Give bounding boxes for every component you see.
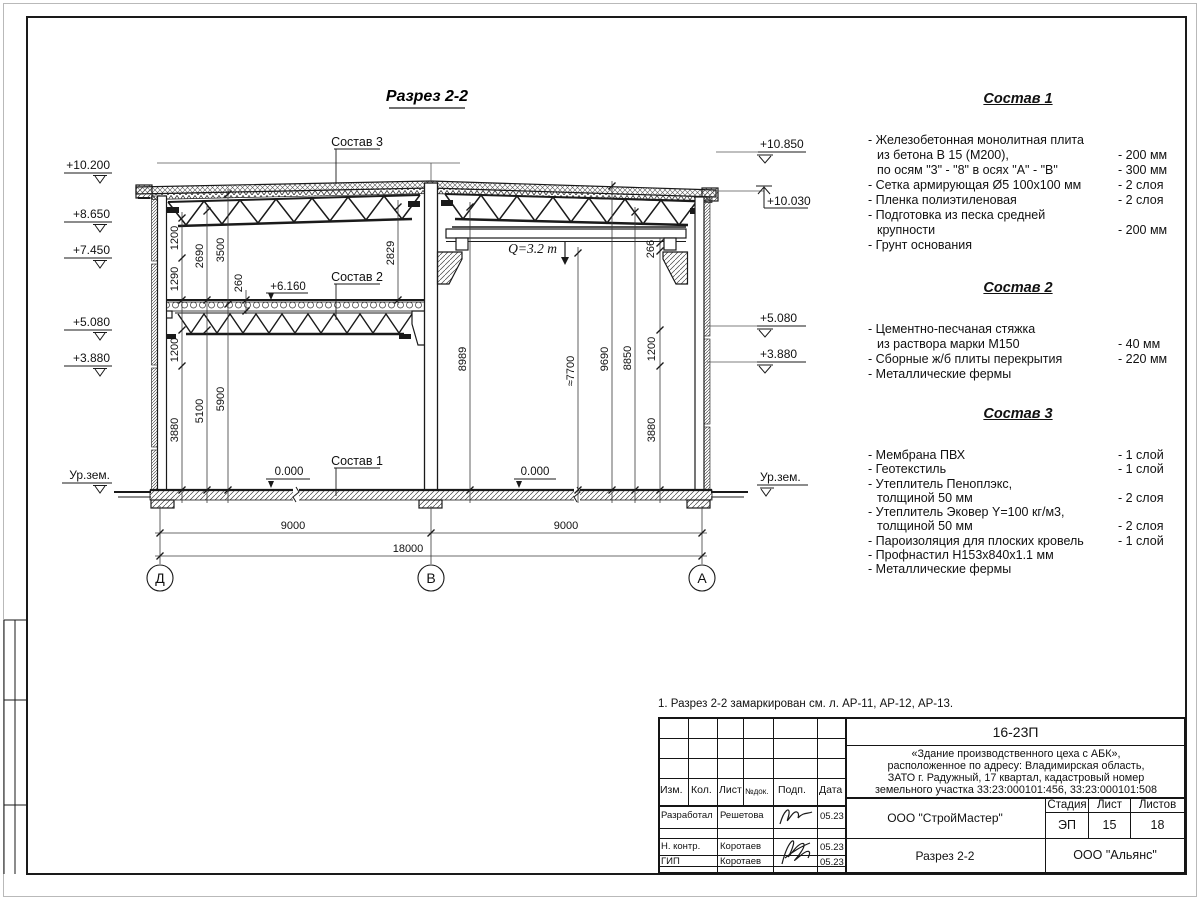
dim-1200-low: 1200 — [169, 338, 181, 362]
stage-value: ЭП — [1046, 818, 1088, 832]
dim-18000: 18000 — [393, 543, 424, 555]
svg-text:+3.880: +3.880 — [73, 351, 110, 365]
elev-7450: +7.450 — [64, 243, 112, 268]
axis-label-a: А — [697, 570, 707, 586]
svg-text:+8.650: +8.650 — [73, 207, 110, 221]
col-list: Лист — [719, 784, 742, 796]
dim-5900: 5900 — [215, 387, 227, 411]
corbel-right — [663, 252, 688, 284]
col-data: Дата — [819, 784, 842, 796]
composition-1: Состав 1 - Железобетонная монолитная пли… — [868, 92, 1168, 253]
elev-3880-left: +3.880 — [64, 351, 112, 376]
col-izm: Изм. — [660, 784, 683, 796]
svg-text:0.000: 0.000 — [521, 466, 550, 478]
section-name-cell: Разрез 2-2 — [846, 849, 1044, 863]
row3-date: 05.23 — [820, 857, 844, 868]
dim-9000-right: 9000 — [554, 520, 578, 532]
svg-text:+6.160: +6.160 — [270, 281, 306, 293]
project-line1: «Здание производственного цеха с АБК», — [848, 748, 1184, 760]
dim-2829: 2829 — [385, 241, 397, 265]
list-item: - Пленка полиэтиленовая- 2 слоя — [868, 193, 1168, 208]
level-6160: +6.160 — [266, 281, 308, 300]
elevation-marks-right: +10.850 +10.030 +5.080 +3.880 — [756, 137, 811, 496]
svg-text:Состав 3: Состав 3 — [331, 135, 383, 149]
intermediate-floor — [158, 300, 425, 345]
list-item: - Утеплитель Эковер Y=100 кг/м3, — [868, 505, 1168, 519]
col-podp: Подп. — [778, 784, 806, 796]
footing-left — [151, 500, 174, 508]
wall-axis-d — [152, 196, 167, 490]
dim-1290: 1290 — [169, 267, 181, 291]
elev-10030: +10.030 — [756, 186, 811, 208]
list-item: - Железобетонная монолитная плита — [868, 133, 1168, 148]
list-item: - Геотекстиль- 1 слой — [868, 462, 1168, 476]
dim-9690: 9690 — [599, 347, 611, 371]
elev-5080-right: +5.080 — [757, 311, 806, 337]
floor-bracket — [412, 311, 425, 345]
list-item: толщиной 50 мм- 2 слоя — [868, 491, 1168, 505]
doc-code: 16-23П — [846, 724, 1185, 740]
footing-right — [687, 500, 710, 508]
level-0-right: 0.000 — [514, 466, 556, 488]
drawing-sheet: Разрез 2-2 — [0, 0, 1200, 900]
composition-3: Состав 3 - Мембрана ПВХ- 1 слой - Геотек… — [868, 407, 1168, 577]
dim-9000-left: 9000 — [281, 520, 305, 532]
row1-date: 05.23 — [820, 811, 844, 822]
client-org: ООО "Альянс" — [1046, 848, 1184, 862]
project-line4: земельного участка 33:23:000101:456, 33:… — [848, 784, 1184, 796]
svg-text:Ур.зем.: Ур.зем. — [69, 468, 110, 482]
dim-5100: 5100 — [194, 399, 206, 423]
elev-10850: +10.850 — [757, 137, 806, 163]
dim-2690: 2690 — [194, 244, 206, 268]
composition-1-title: Состав 1 — [868, 92, 1168, 107]
stage-label: Стадия — [1046, 799, 1088, 811]
elev-10200: +10.200 — [64, 158, 112, 183]
footing-middle — [419, 500, 442, 508]
ground-floor — [114, 487, 748, 508]
composition-3-title: Состав 3 — [868, 407, 1168, 422]
elev-3880-right: +3.880 — [757, 347, 806, 373]
svg-text:+10.030: +10.030 — [767, 194, 811, 208]
list-item: - Мембрана ПВХ- 1 слой — [868, 448, 1168, 462]
elevation-marks-left: +10.200 +8.650 +7.450 +5.080 +3.880 — [62, 158, 112, 493]
roof-truss-left — [168, 195, 420, 226]
sheets-label: Листов — [1131, 799, 1184, 811]
list-item: - Металлические фермы — [868, 562, 1168, 576]
axis-label-v: В — [426, 570, 435, 586]
designer-org: ООО "СтройМастер" — [846, 811, 1044, 825]
composition-2-title: Состав 2 — [868, 281, 1168, 296]
row1-role: Разработал — [661, 810, 713, 821]
dim-3880-right: 3880 — [646, 418, 658, 442]
dim-8850: 8850 — [622, 346, 634, 370]
list-item: - Сборные ж/б плиты перекрытия- 220 мм — [868, 352, 1168, 367]
row3-name: Коротаев — [720, 856, 761, 867]
svg-text:+10.200: +10.200 — [66, 158, 110, 172]
elev-5080-left: +5.080 — [64, 315, 112, 340]
elev-ground-right: Ур.зем. — [757, 470, 808, 496]
dim-1200-top: 1200 — [169, 226, 181, 250]
elev-8650: +8.650 — [64, 207, 112, 232]
list-item: из раствора марки М150- 40 мм — [868, 337, 1168, 352]
list-item: - Профнастил Н153х840х1.1 мм — [868, 548, 1168, 562]
svg-text:Состав 2: Состав 2 — [331, 270, 383, 284]
dim-266: 266 — [645, 240, 657, 258]
sheet-label: Лист — [1089, 799, 1130, 811]
drawing-note: 1. Разрез 2-2 замаркирован см. л. АР-11,… — [658, 698, 953, 710]
row2-name: Коротаев — [720, 841, 761, 852]
sheets-value: 18 — [1131, 818, 1184, 832]
section-title: Разрез 2-2 — [386, 88, 468, 105]
dim-260: 260 — [233, 274, 245, 292]
approval-strip — [4, 620, 27, 874]
sheet-value: 15 — [1089, 818, 1130, 832]
row3-role: ГИП — [661, 856, 680, 867]
list-item: крупности- 200 мм — [868, 223, 1168, 238]
composition-2: Состав 2 - Цементно-песчаная стяжка из р… — [868, 281, 1168, 382]
corbel-left — [438, 252, 463, 284]
axis-label-d: Д — [155, 570, 165, 586]
column-axis-v — [425, 183, 438, 490]
col-kol: Кол. — [691, 784, 712, 796]
list-item: - Утеплитель Пеноплэкс, — [868, 477, 1168, 491]
svg-text:Состав 1: Состав 1 — [331, 454, 383, 468]
list-item: - Цементно-песчаная стяжка — [868, 322, 1168, 337]
dim-7700: ≈7700 — [565, 356, 577, 387]
elev-ground-left: Ур.зем. — [62, 468, 112, 493]
svg-text:0.000: 0.000 — [275, 466, 304, 478]
svg-text:+5.080: +5.080 — [73, 315, 110, 329]
svg-text:+3.880: +3.880 — [760, 347, 797, 361]
axis-bubbles: Д В А — [147, 565, 715, 591]
list-item: - Металлические фермы — [868, 367, 1168, 382]
row2-role: Н. контр. — [661, 841, 700, 852]
dimension-labels: 1200 1290 2690 3500 260 2829 1200 5100 5… — [169, 226, 658, 555]
dim-3880-left: 3880 — [169, 418, 181, 442]
project-line2: расположенное по адресу: Владимирская об… — [848, 760, 1184, 772]
crane-capacity-label: Q=3.2 т — [508, 241, 557, 256]
parapet-left — [136, 185, 152, 198]
svg-text:+5.080: +5.080 — [760, 311, 797, 325]
col-ndok: №док. — [745, 787, 768, 796]
signature-reshetova — [780, 810, 812, 824]
svg-text:+7.450: +7.450 — [73, 243, 110, 257]
list-item: по осям "3" - "8" в осях "А" - "В"- 300 … — [868, 163, 1168, 178]
row1-name: Решетова — [720, 810, 764, 821]
list-item: из бетона В 15 (М200),- 200 мм — [868, 148, 1168, 163]
svg-text:+10.850: +10.850 — [760, 137, 804, 151]
dim-8989: 8989 — [457, 347, 469, 371]
level-0-left: 0.000 — [266, 466, 310, 488]
drawing-title: Разрез 2-2 — [386, 88, 468, 108]
signature-korotaev — [782, 841, 810, 864]
list-item: - Пароизоляция для плоских кровель- 1 сл… — [868, 534, 1168, 548]
wall-axis-a — [695, 197, 710, 490]
list-item: - Сетка армирующая Ø5 100х100 мм- 2 слоя — [868, 178, 1168, 193]
ref-comp3: Состав 3 — [331, 135, 383, 184]
list-item: - Грунт основания — [868, 238, 1168, 253]
dim-1200-right: 1200 — [646, 337, 658, 361]
list-item: толщиной 50 мм- 2 слоя — [868, 519, 1168, 533]
crane-hook-icon — [561, 241, 569, 265]
dim-3500: 3500 — [215, 238, 227, 262]
project-line3: ЗАТО г. Радужный, 17 квартал, кадастровы… — [848, 772, 1184, 784]
svg-text:Ур.зем.: Ур.зем. — [760, 470, 801, 484]
row2-date: 05.23 — [820, 842, 844, 853]
list-item: - Подготовка из песка средней — [868, 208, 1168, 223]
